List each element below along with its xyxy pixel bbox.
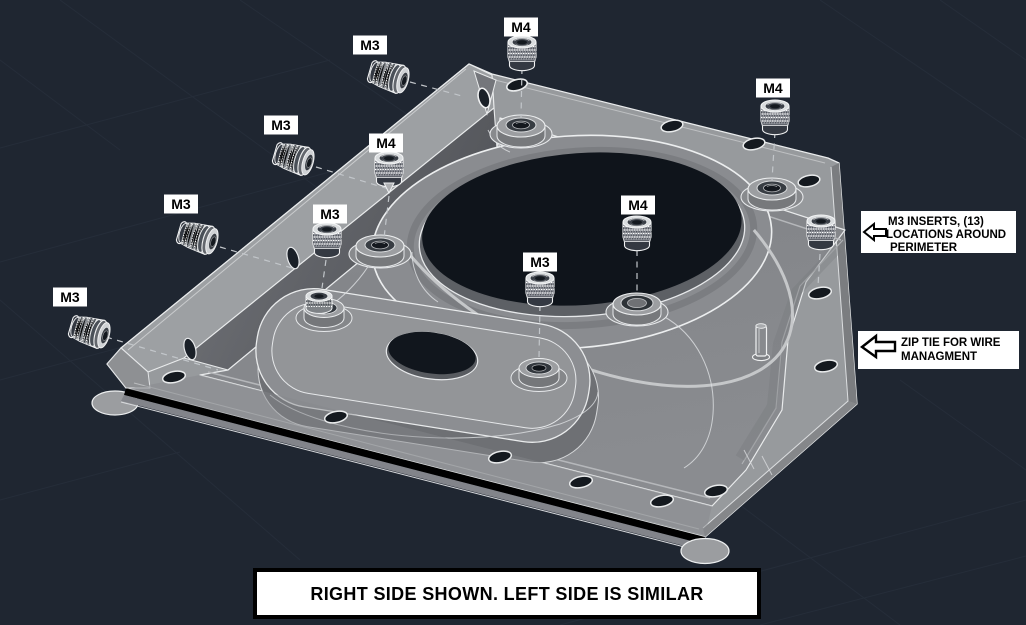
svg-text:M3: M3 <box>60 289 80 305</box>
svg-text:M3: M3 <box>530 254 550 270</box>
svg-text:M3: M3 <box>271 117 291 133</box>
svg-text:M3: M3 <box>320 206 340 222</box>
svg-text:M4: M4 <box>376 135 396 151</box>
svg-text:M4: M4 <box>628 197 648 213</box>
svg-text:M3: M3 <box>171 196 191 212</box>
svg-text:M4: M4 <box>763 80 783 96</box>
svg-text:PERIMETER: PERIMETER <box>890 242 958 254</box>
svg-text:RIGHT SIDE SHOWN. LEFT SIDE IS: RIGHT SIDE SHOWN. LEFT SIDE IS SIMILAR <box>310 584 703 604</box>
svg-text:M3 INSERTS, (13): M3 INSERTS, (13) <box>888 216 984 228</box>
svg-text:ZIP TIE FOR WIRE: ZIP TIE FOR WIRE <box>901 337 1001 349</box>
svg-text:M4: M4 <box>511 19 531 35</box>
svg-text:LOCATIONS AROUND: LOCATIONS AROUND <box>886 229 1006 241</box>
svg-text:M3: M3 <box>360 37 380 53</box>
svg-text:MANAGMENT: MANAGMENT <box>901 351 977 363</box>
